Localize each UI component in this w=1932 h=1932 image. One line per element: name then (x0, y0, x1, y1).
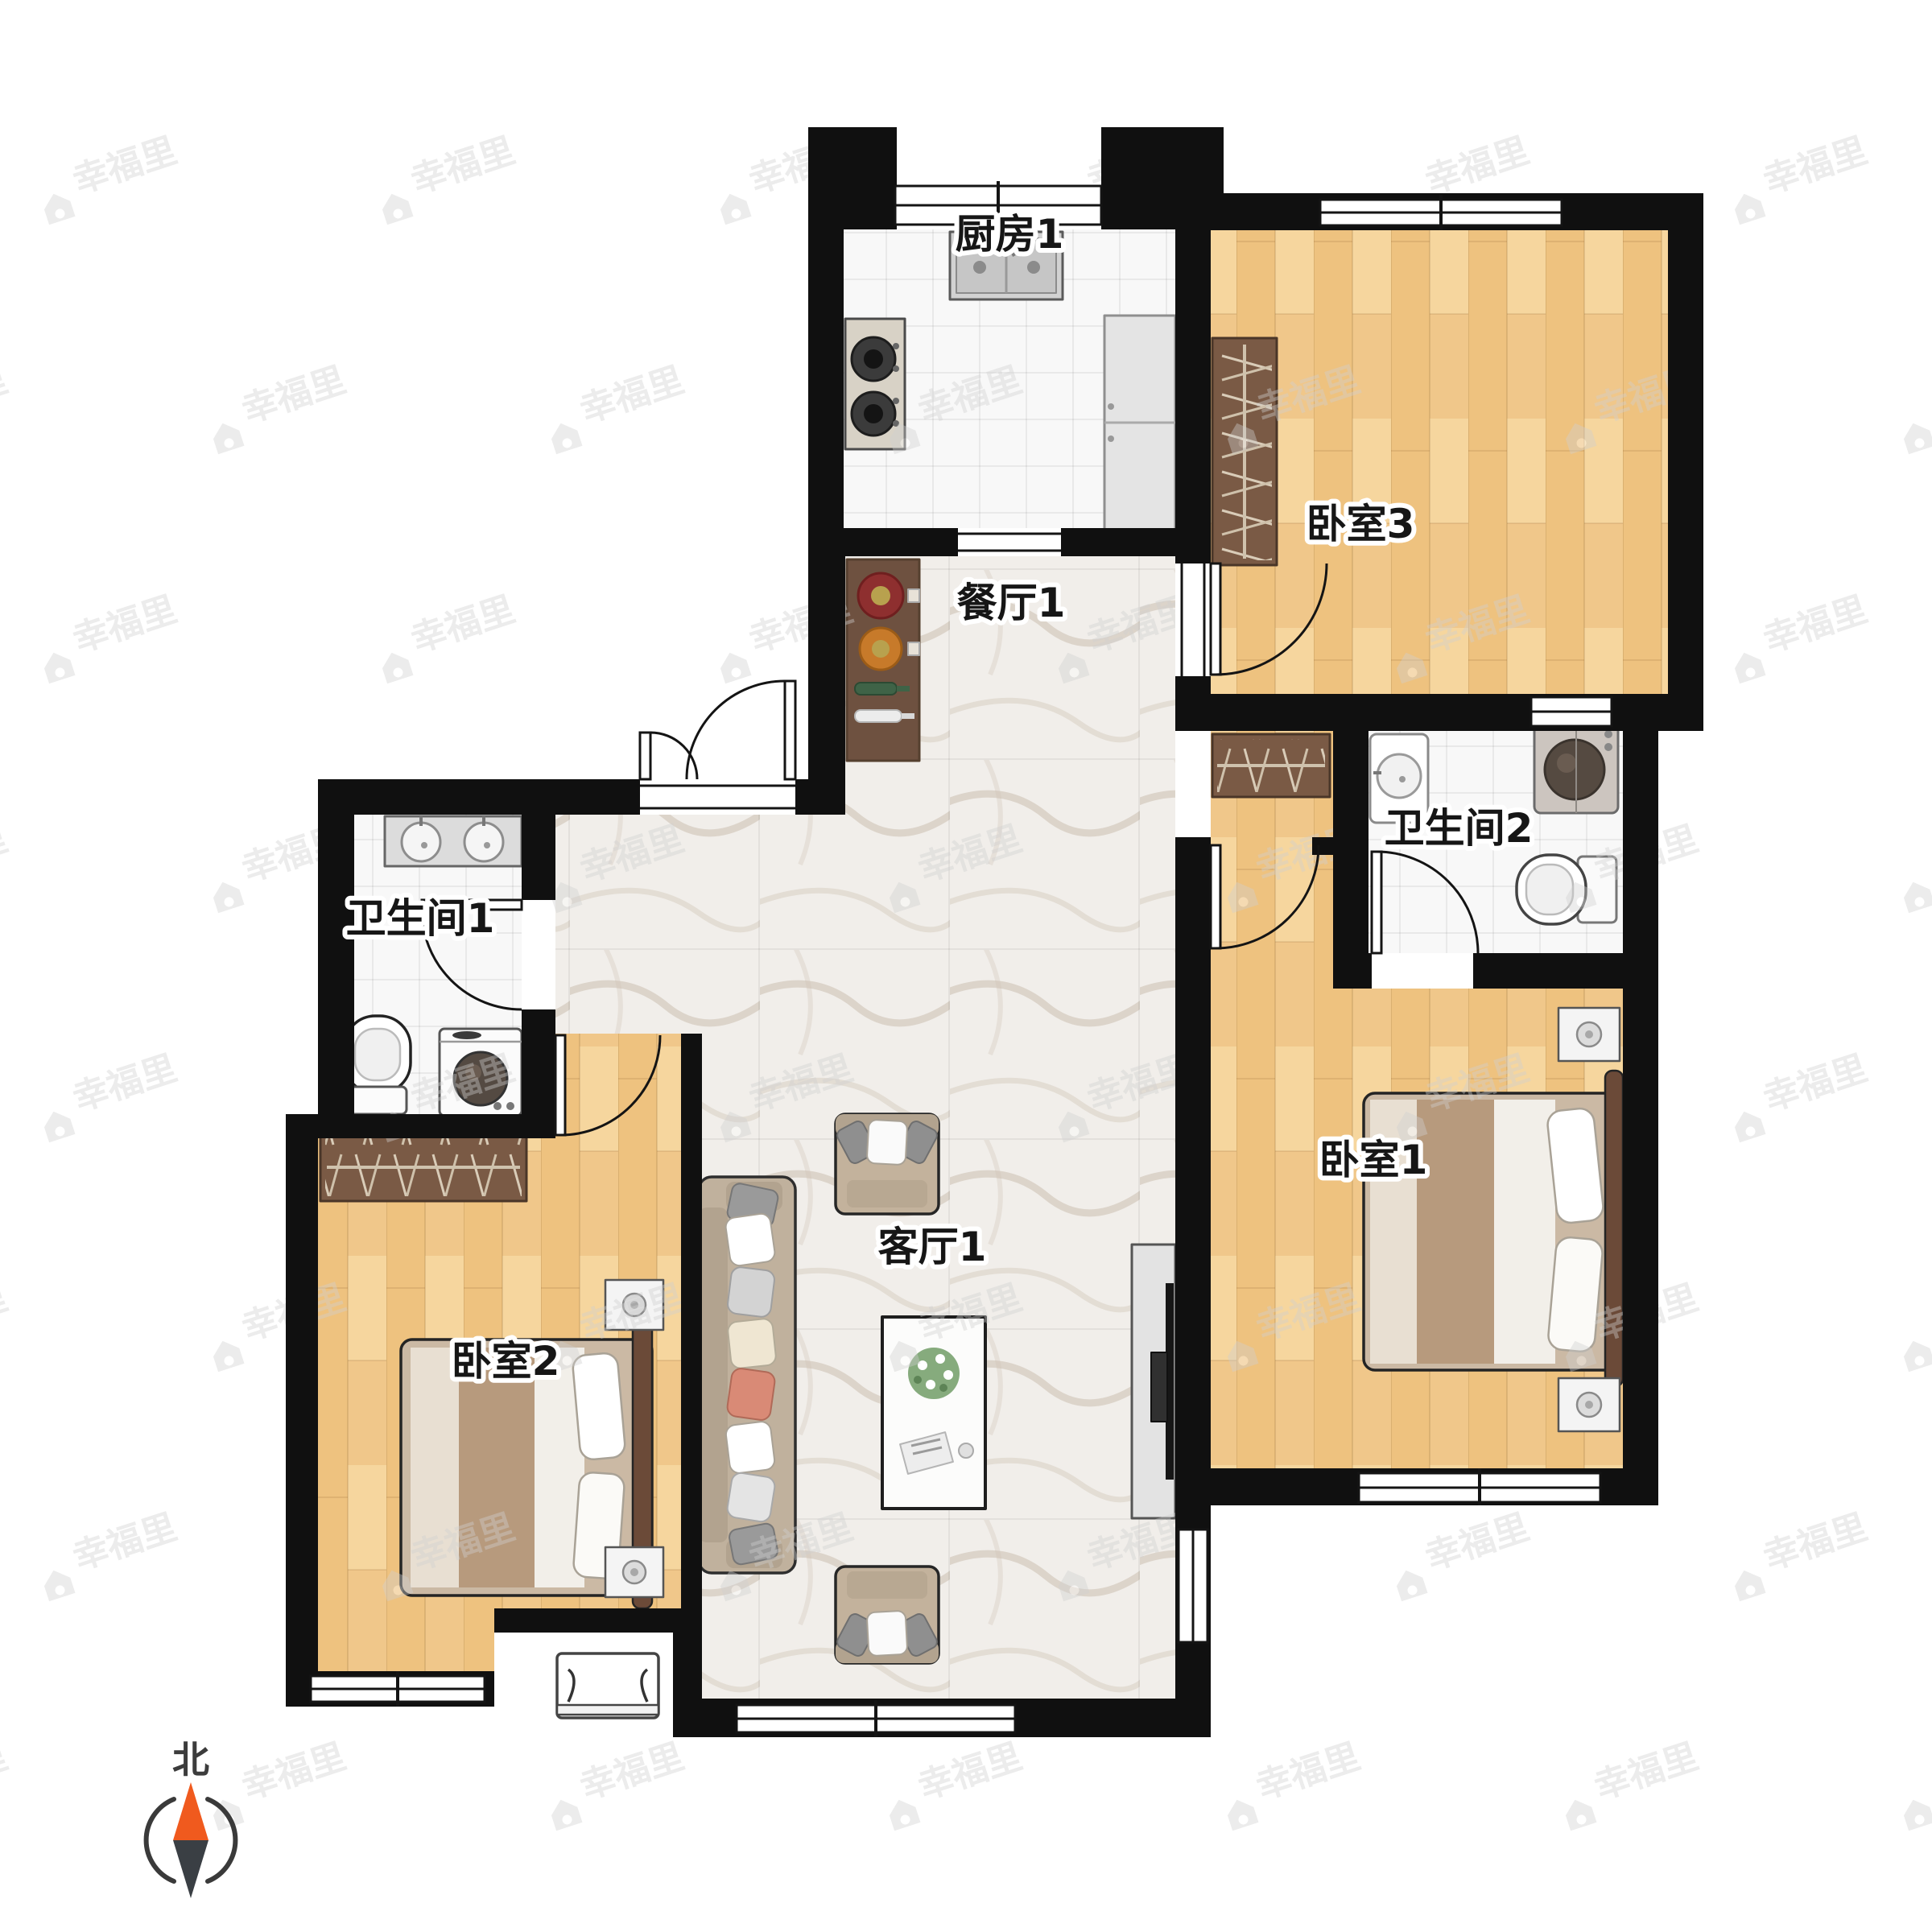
armchair-top (835, 1114, 939, 1214)
svg-text:幸福里: 幸福里 (575, 359, 688, 431)
toilet-bathroom1 (345, 1016, 411, 1114)
wardrobe-bedroom3 (1212, 338, 1277, 565)
svg-text:幸福里: 幸福里 (237, 1736, 350, 1807)
compass-ring (147, 1799, 174, 1881)
svg-text:幸福里: 幸福里 (1589, 1736, 1703, 1807)
nightstand (1558, 1378, 1620, 1431)
svg-text:幸福里: 幸福里 (0, 359, 13, 431)
bedroom2-window (311, 1671, 485, 1707)
svg-text:幸福里: 幸福里 (68, 588, 181, 660)
svg-text:幸福里: 幸福里 (406, 588, 519, 660)
room-label-bedroom3: 卧室3 (1307, 501, 1415, 547)
nightstand (605, 1547, 663, 1597)
svg-text:幸福里: 幸福里 (1758, 588, 1872, 660)
air-conditioner (557, 1653, 658, 1718)
armchair-bottom (835, 1567, 939, 1663)
living-side-window (1179, 1529, 1207, 1642)
svg-text:幸福里: 幸福里 (237, 359, 350, 431)
svg-text:幸福里: 幸福里 (1420, 1506, 1534, 1578)
sideboard (847, 559, 919, 761)
washing-machine-bathroom2 (1534, 723, 1618, 813)
svg-text:幸福里: 幸福里 (1927, 359, 1932, 431)
svg-text:幸福里: 幸福里 (1758, 130, 1872, 201)
svg-text:幸福里: 幸福里 (1927, 1736, 1932, 1807)
wardrobe-bedroom2 (320, 1133, 526, 1201)
svg-text:幸福里: 幸福里 (1758, 1047, 1872, 1119)
room-label-kitchen: 厨房1 (956, 211, 1064, 258)
svg-text:幸福里: 幸福里 (68, 1506, 181, 1578)
bedroom1-window (1359, 1468, 1600, 1505)
svg-text:幸福里: 幸福里 (1758, 1506, 1872, 1578)
svg-text:幸福里: 幸福里 (575, 1736, 688, 1807)
svg-text:幸福里: 幸福里 (68, 130, 181, 201)
compass-north-label: 北 (172, 1738, 209, 1781)
svg-text:幸福里: 幸福里 (1420, 130, 1534, 201)
entry-door (640, 681, 795, 815)
svg-text:幸福里: 幸福里 (68, 1047, 181, 1119)
bedroom3-window (1320, 195, 1562, 230)
double-washbasin (385, 816, 522, 866)
room-label-bathroom2: 卫生间2 (1385, 805, 1534, 852)
svg-text:幸福里: 幸福里 (913, 1736, 1026, 1807)
room-label-dining: 餐厅1 (957, 580, 1066, 626)
tv-cabinet (1132, 1245, 1175, 1518)
svg-text:幸福里: 幸福里 (406, 130, 519, 201)
wardrobe-bedroom1 (1212, 734, 1330, 797)
living-bottom-window (737, 1700, 1015, 1737)
nightstand (1558, 1008, 1620, 1061)
room-label-bedroom1: 卧室1 (1319, 1137, 1428, 1183)
floor-plan: 幸福里 幸福里 幸福里 幸福里 幸福里 幸福里 (0, 0, 1932, 1932)
svg-text:幸福里: 幸福里 (1927, 1277, 1932, 1348)
room-label-living: 客厅1 (878, 1224, 987, 1270)
svg-text:幸福里: 幸福里 (0, 818, 13, 890)
svg-text:幸福里: 幸福里 (0, 1736, 13, 1807)
kitchen-door-opening (958, 528, 1061, 556)
compass-needle-south (173, 1840, 208, 1898)
svg-text:幸福里: 幸福里 (1927, 818, 1932, 890)
svg-text:幸福里: 幸福里 (0, 1277, 13, 1348)
bathroom2-window (1531, 697, 1612, 726)
compass-needle-north (173, 1782, 208, 1840)
bedroom2-floor-lower (318, 1608, 494, 1671)
room-label-bedroom2: 卧室2 (452, 1338, 560, 1385)
svg-text:幸福里: 幸福里 (1251, 1736, 1364, 1807)
sofa (699, 1177, 795, 1573)
bedroom2-floor-nook (555, 1034, 681, 1138)
room-label-bathroom1: 卫生间1 (346, 895, 495, 942)
